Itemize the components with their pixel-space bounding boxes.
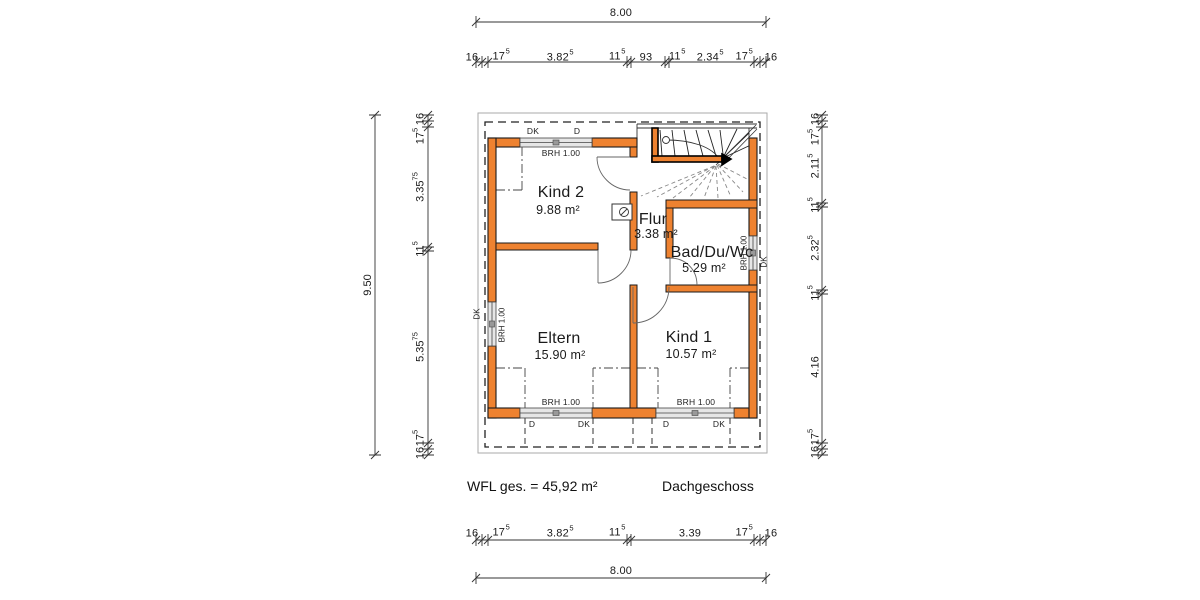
dim-bottom-4: 3.39 bbox=[679, 525, 701, 540]
window-label-brh: BRH 1.00 bbox=[498, 308, 507, 343]
window-label-dk: DK bbox=[527, 126, 539, 136]
dim-top-8: 16 bbox=[765, 49, 778, 64]
room-area-bad: 5.29 m² bbox=[682, 261, 726, 275]
room-area-kind2: 9.88 m² bbox=[536, 203, 580, 217]
staircase bbox=[637, 124, 757, 198]
roof-dashed-stubs bbox=[525, 418, 730, 447]
dim-right-6: 4.16 bbox=[807, 356, 822, 377]
window-label-dk: DK bbox=[760, 256, 769, 267]
dim-left-0: 16 bbox=[412, 113, 427, 125]
dim-right-0: 16 bbox=[807, 113, 822, 125]
dim-right-5: 115 bbox=[807, 285, 822, 301]
dim-left-1: 175 bbox=[412, 128, 427, 144]
dim-top-2: 3.825 bbox=[547, 49, 574, 64]
dim-left-2: 3.3575 bbox=[412, 172, 427, 202]
window-mullion bbox=[692, 411, 698, 416]
electrical-symbol bbox=[612, 204, 632, 220]
dim-left-6: 16 bbox=[412, 447, 427, 459]
door-eltern bbox=[598, 250, 631, 283]
floorplan-canvas: 8.00 16 175 3.825 115 93 115 2.345 175 1… bbox=[0, 0, 1200, 600]
wall-left-lower bbox=[488, 346, 496, 418]
dim-top-0: 16 bbox=[466, 49, 479, 64]
room-area-flur: 3.38 m² bbox=[634, 227, 678, 241]
dim-top-7: 175 bbox=[735, 48, 752, 63]
window-mullion bbox=[553, 140, 559, 145]
dim-left-3: 115 bbox=[412, 241, 427, 257]
room-label-kind2: Kind 2 bbox=[538, 184, 585, 202]
window-label-d: D bbox=[663, 419, 669, 429]
room-area-eltern: 15.90 m² bbox=[535, 348, 586, 362]
window-label-brh: BRH 1.00 bbox=[542, 148, 580, 158]
wall-left-upper bbox=[488, 138, 496, 302]
window-label-dk: DK bbox=[578, 419, 590, 429]
wall-bottom-1 bbox=[488, 408, 520, 418]
dim-left-5: 175 bbox=[412, 430, 427, 446]
door-kind2 bbox=[597, 157, 630, 190]
window-label-brh: BRH 1.00 bbox=[542, 397, 580, 407]
room-label-kind1: Kind 1 bbox=[666, 329, 713, 347]
window-label-d: D bbox=[529, 419, 535, 429]
floorplan-drawing bbox=[0, 0, 1200, 600]
kneewall-dashdot-lines bbox=[496, 147, 749, 408]
wall-bottom-2 bbox=[592, 408, 656, 418]
dim-top-total: 8.00 bbox=[610, 7, 632, 19]
stair-treads-lower-dashed bbox=[641, 164, 749, 198]
dim-right-3: 115 bbox=[807, 197, 822, 213]
wall-right-upper bbox=[749, 138, 757, 236]
interior-walls bbox=[496, 147, 757, 408]
total-living-area-text: WFL ges. = 45,92 m² bbox=[467, 478, 598, 494]
dim-bottom-2: 3.825 bbox=[547, 525, 574, 540]
dim-bottom-1: 175 bbox=[492, 524, 509, 539]
dim-top-5: 115 bbox=[669, 48, 685, 63]
dim-top-3: 115 bbox=[609, 48, 625, 63]
window-label-brh: BRH 1.00 bbox=[740, 236, 749, 271]
wall-bad-south bbox=[666, 285, 757, 292]
door-kind1 bbox=[633, 287, 669, 323]
wall-stair-south bbox=[666, 200, 757, 208]
window-label-dk: DK bbox=[713, 419, 725, 429]
dim-left-total: 9.50 bbox=[362, 274, 374, 295]
dim-top-4: 93 bbox=[640, 49, 653, 64]
room-label-eltern: Eltern bbox=[538, 330, 581, 348]
window-label-brh: BRH 1.00 bbox=[677, 397, 715, 407]
window-label-dk: DK bbox=[473, 308, 482, 319]
wall-flur-west bbox=[630, 192, 637, 250]
wall-eltern-kind1 bbox=[630, 285, 637, 408]
wall-top-right bbox=[592, 138, 637, 147]
dimension-lines bbox=[369, 16, 828, 584]
dim-right-1: 175 bbox=[807, 129, 822, 145]
dim-bottom-6: 16 bbox=[765, 525, 778, 540]
dim-right-7: 175 bbox=[807, 429, 822, 445]
wall-flur-west-stub bbox=[630, 147, 637, 157]
floor-name-text: Dachgeschoss bbox=[662, 478, 754, 494]
stair-walkline-start-circle bbox=[663, 137, 670, 144]
dim-top-1: 175 bbox=[492, 48, 509, 63]
dim-bottom-0: 16 bbox=[466, 525, 479, 540]
dim-bottom-5: 175 bbox=[735, 524, 752, 539]
dim-bottom-total: 8.00 bbox=[610, 565, 632, 577]
dim-left-4: 5.3575 bbox=[412, 332, 427, 362]
dim-right-4: 2.325 bbox=[807, 235, 822, 261]
window-label-d: D bbox=[574, 126, 580, 136]
window-mullion bbox=[553, 411, 559, 416]
dim-bottom-3: 115 bbox=[609, 524, 625, 539]
stair-treads-upper bbox=[660, 129, 755, 158]
dim-top-6: 2.345 bbox=[697, 49, 724, 64]
room-area-kind1: 10.57 m² bbox=[666, 347, 717, 361]
wall-kind2-eltern bbox=[496, 243, 598, 250]
window-mullion bbox=[490, 321, 495, 327]
window-midlines bbox=[492, 143, 753, 414]
stair-parapet bbox=[652, 128, 731, 165]
dim-right-8: 16 bbox=[807, 446, 822, 458]
dim-right-2: 2.115 bbox=[807, 154, 822, 179]
